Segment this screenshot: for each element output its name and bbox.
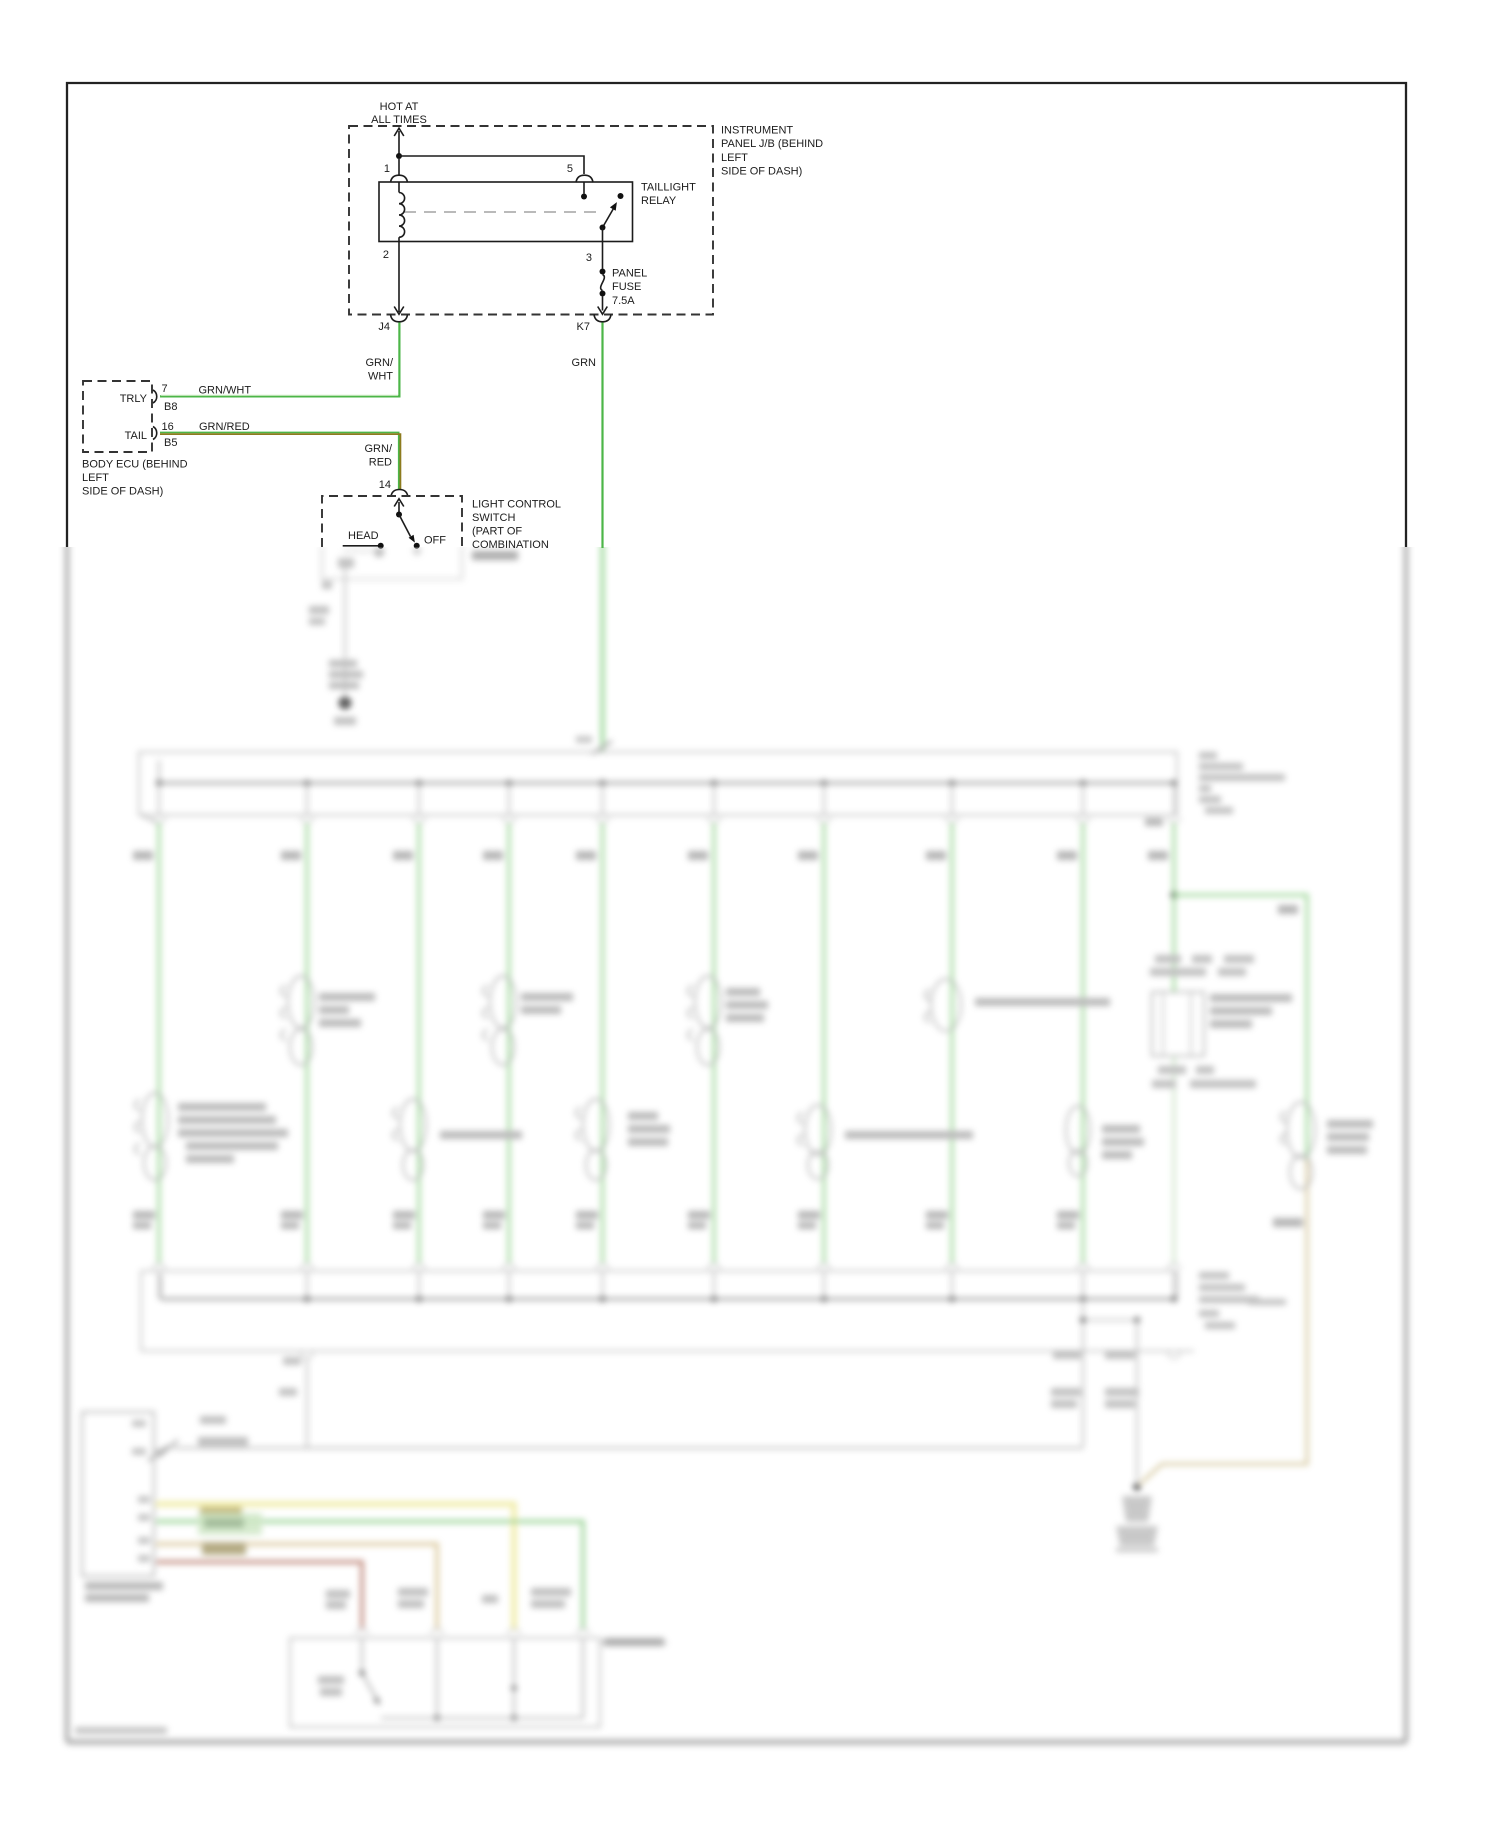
svg-text:PANEL: PANEL: [612, 268, 647, 280]
svg-text:INSTRUMENT: INSTRUMENT: [721, 125, 793, 137]
svg-text:RED: RED: [369, 456, 392, 468]
svg-text:16: 16: [162, 421, 174, 433]
svg-text:GRN: GRN: [572, 357, 597, 369]
svg-text:OFF: OFF: [424, 535, 446, 547]
svg-text:1: 1: [384, 163, 390, 175]
svg-text:GRN/: GRN/: [366, 357, 394, 369]
svg-text:WHT: WHT: [368, 371, 393, 383]
svg-text:ALL TIMES: ALL TIMES: [371, 114, 427, 126]
svg-text:LIGHT CONTROL: LIGHT CONTROL: [472, 499, 561, 511]
svg-text:FUSE: FUSE: [612, 281, 641, 293]
svg-text:LEFT: LEFT: [721, 152, 748, 164]
svg-text:K7: K7: [577, 321, 590, 333]
svg-text:GRN/: GRN/: [365, 443, 393, 455]
svg-text:TAIL: TAIL: [125, 430, 147, 442]
svg-text:LEFT: LEFT: [82, 472, 109, 484]
svg-text:7: 7: [162, 383, 168, 395]
svg-text:BODY ECU (BEHIND: BODY ECU (BEHIND: [82, 459, 188, 471]
svg-text:HOT AT: HOT AT: [380, 101, 419, 113]
svg-text:SIDE OF DASH): SIDE OF DASH): [82, 486, 163, 498]
svg-text:SIDE OF DASH): SIDE OF DASH): [721, 166, 802, 178]
svg-text:(PART OF: (PART OF: [472, 526, 522, 538]
svg-text:GRN/WHT: GRN/WHT: [199, 385, 252, 397]
svg-text:5: 5: [567, 163, 573, 175]
svg-text:GRN/RED: GRN/RED: [199, 421, 250, 433]
svg-text:3: 3: [586, 252, 592, 264]
svg-text:14: 14: [379, 479, 391, 491]
svg-text:TAILLIGHT: TAILLIGHT: [641, 182, 696, 194]
svg-text:RELAY: RELAY: [641, 195, 677, 207]
svg-text:PANEL J/B (BEHIND: PANEL J/B (BEHIND: [721, 138, 823, 150]
svg-text:SWITCH: SWITCH: [472, 512, 515, 524]
svg-text:J4: J4: [378, 321, 390, 333]
svg-text:B8: B8: [164, 401, 177, 413]
svg-text:7.5A: 7.5A: [612, 295, 635, 307]
svg-text:2: 2: [383, 249, 389, 261]
svg-text:COMBINATION: COMBINATION: [472, 539, 549, 551]
svg-text:TRLY: TRLY: [120, 393, 148, 405]
svg-text:HEAD: HEAD: [348, 530, 379, 542]
svg-text:B5: B5: [164, 437, 177, 449]
